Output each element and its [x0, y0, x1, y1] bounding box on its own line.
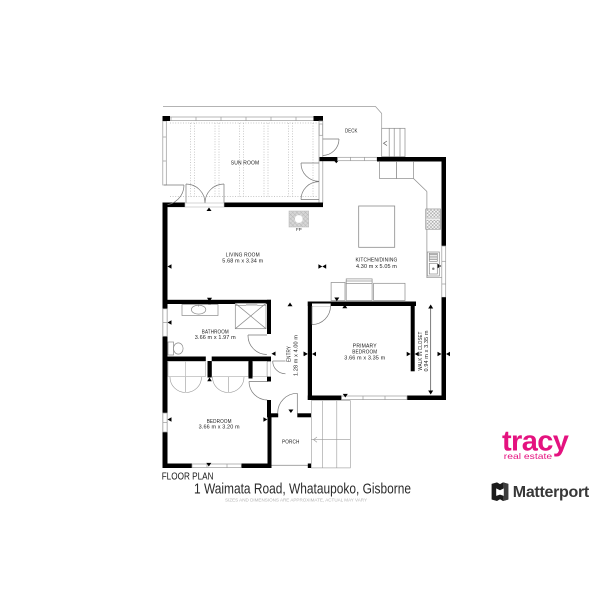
svg-text:real estate: real estate	[504, 451, 553, 461]
svg-text:5.68 m x 3.34 m: 5.68 m x 3.34 m	[222, 259, 263, 265]
svg-text:WALK IN CLOSET: WALK IN CLOSET	[418, 332, 424, 371]
svg-text:SUN ROOM: SUN ROOM	[231, 161, 260, 167]
svg-text:3.66 m x 3.35 m: 3.66 m x 3.35 m	[344, 356, 385, 362]
svg-text:KITCHEN/DINING: KITCHEN/DINING	[356, 258, 398, 264]
svg-text:PORCH: PORCH	[282, 440, 300, 446]
svg-text:4.30 m x 5.05 m: 4.30 m x 5.05 m	[356, 264, 397, 270]
svg-text:1 Waimata Road, Whataupoko, Gi: 1 Waimata Road, Whataupoko, Gisborne	[194, 481, 411, 498]
svg-text:DECK: DECK	[345, 128, 358, 134]
svg-text:Matterport: Matterport	[513, 484, 590, 501]
svg-text:0.94 m x 3.35 m: 0.94 m x 3.35 m	[424, 331, 430, 372]
svg-text:SIZES AND DIMENSIONS ARE APPRO: SIZES AND DIMENSIONS ARE APPROXIMATE, AC…	[225, 497, 367, 502]
svg-text:FP: FP	[296, 227, 302, 232]
svg-text:ENTRY: ENTRY	[287, 346, 293, 362]
svg-text:PRIMARY: PRIMARY	[353, 343, 378, 349]
svg-text:3.66 m x 1.97 m: 3.66 m x 1.97 m	[195, 335, 236, 341]
svg-text:3.66 m x 3.20 m: 3.66 m x 3.20 m	[199, 424, 240, 430]
svg-text:1.28 m x 4.00 m: 1.28 m x 4.00 m	[294, 335, 300, 376]
